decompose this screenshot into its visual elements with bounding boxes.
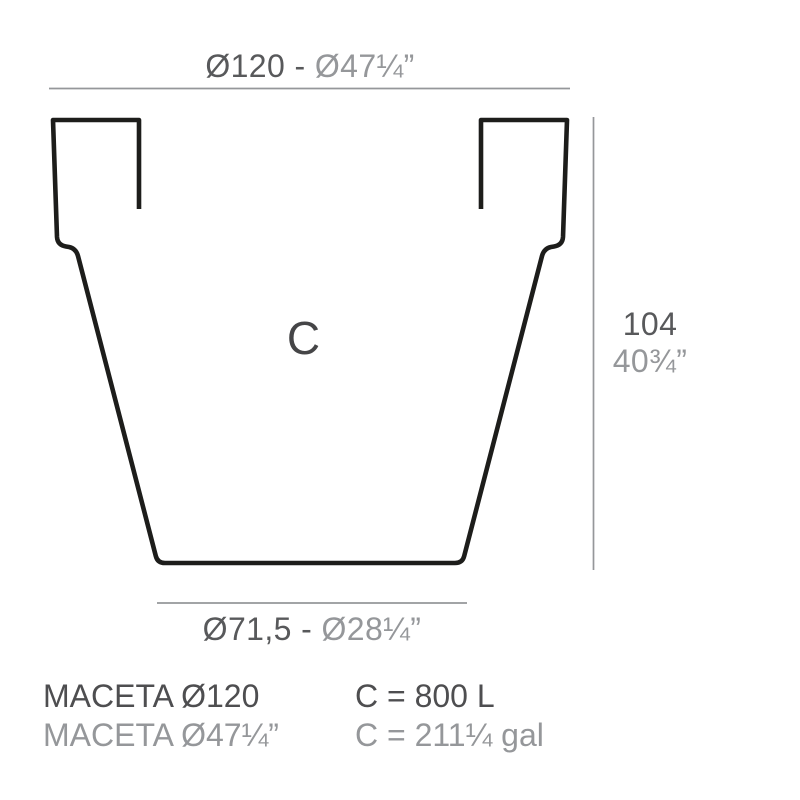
product-name-caption: MACETA Ø120 MACETA Ø47¼”: [43, 677, 279, 754]
bottom-dimension-metric: Ø71,5 -: [203, 611, 322, 647]
bottom-dimension-imperial: Ø28¼”: [321, 611, 421, 647]
top-dimension-label: Ø120 - Ø47¼”: [205, 48, 414, 84]
height-dimension-imperial: 40¾”: [613, 343, 688, 380]
bottom-dimension-label: Ø71,5 - Ø28¼”: [203, 611, 422, 647]
technical-drawing-page: Ø120 - Ø47¼” C 104 40¾” Ø71,5 - Ø28¼” MA…: [0, 0, 800, 800]
top-dimension-imperial: Ø47¼”: [315, 48, 415, 84]
top-dimension-metric: Ø120 -: [205, 48, 315, 84]
capacity-liters: C = 800 L: [355, 677, 544, 716]
product-name-imperial: MACETA Ø47¼”: [43, 716, 279, 755]
capacity-letter-label: C: [287, 311, 321, 365]
product-name-metric: MACETA Ø120: [43, 677, 279, 716]
height-dimension-label: 104 40¾”: [613, 306, 688, 380]
capacity-gallons: C = 211¼ gal: [355, 716, 544, 755]
height-dimension-metric: 104: [613, 306, 688, 343]
capacity-caption: C = 800 L C = 211¼ gal: [355, 677, 544, 754]
